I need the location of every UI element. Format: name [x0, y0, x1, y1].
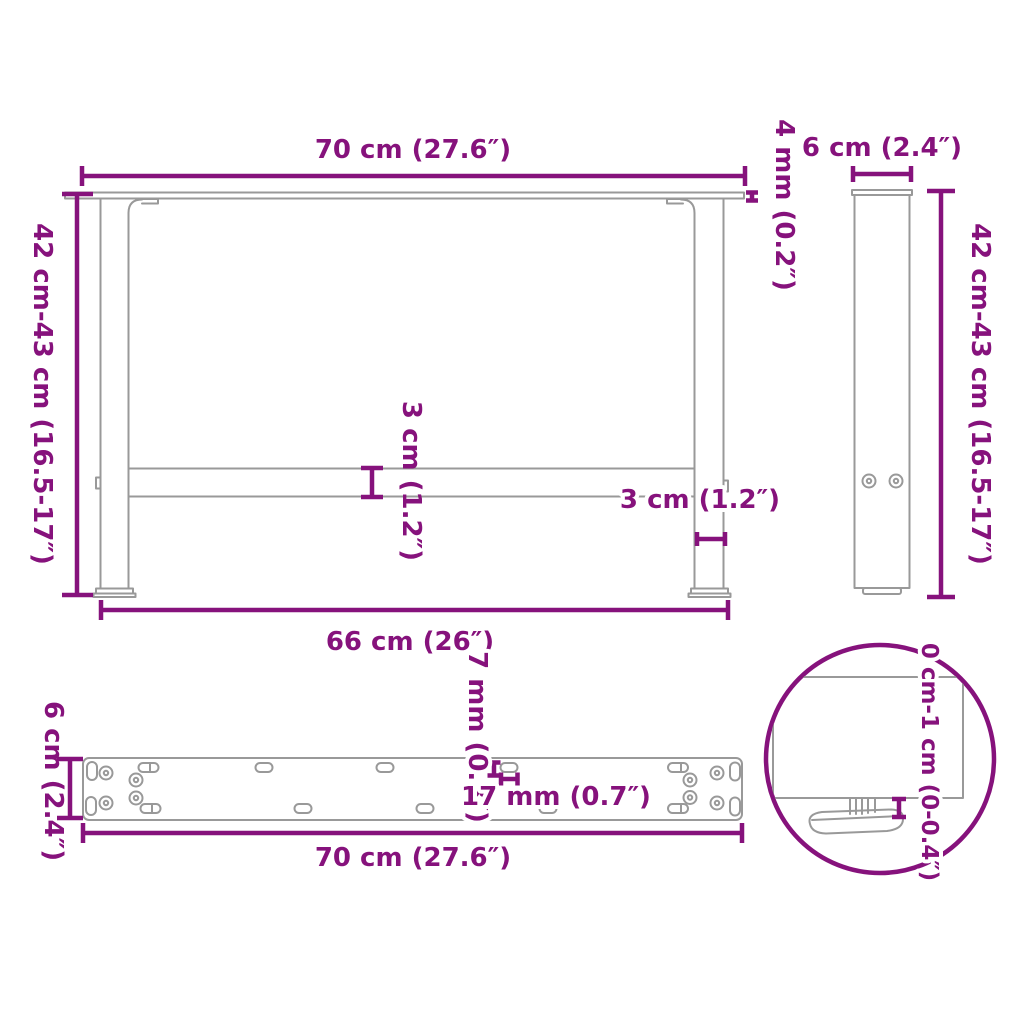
- dim-side-height: [927, 191, 955, 597]
- side-foot: [863, 588, 901, 594]
- label-plate-length: 70 cm (27.6″): [315, 843, 511, 873]
- detail-circle: [766, 645, 994, 873]
- dim-leg-width: [697, 532, 725, 546]
- side-screw-holes: [863, 475, 903, 488]
- front-right-leg: [681, 199, 724, 588]
- dim-plate-length: [83, 823, 742, 843]
- dim-crossbar-height: [361, 468, 383, 497]
- dim-side-depth: [853, 166, 911, 182]
- dim-front-top-width: [82, 166, 745, 186]
- label-front-top-width: 70 cm (27.6″): [315, 135, 511, 165]
- label-slot-length: 17 mm (0.7″): [461, 782, 651, 812]
- label-bar-thickness: 4 mm (0.2″): [769, 119, 799, 291]
- side-view-drawing: [852, 190, 912, 594]
- label-front-height: 42 cm-43 cm (16.5-17″): [27, 223, 57, 565]
- label-leg-width: 3 cm (1.2″): [620, 485, 780, 515]
- bar-tabs: [142, 199, 683, 204]
- label-side-height: 42 cm-43 cm (16.5-17″): [965, 223, 995, 565]
- label-foot-adjust: 0 cm-1 cm (0-0.4″): [916, 643, 942, 881]
- dim-feet-span: [101, 600, 728, 620]
- dimension-diagram: 70 cm (27.6″) 4 mm (0.2″) 6 cm (2.4″) 42…: [0, 0, 1024, 1024]
- dim-front-height: [62, 194, 93, 595]
- top-bar: [65, 193, 744, 199]
- label-crossbar-height: 3 cm (1.2″): [396, 401, 426, 561]
- front-left-leg: [101, 199, 143, 588]
- front-feet: [94, 589, 731, 598]
- dim-bar-thickness: [746, 193, 758, 201]
- side-leg-body: [855, 195, 910, 588]
- label-side-depth: 6 cm (2.4″): [802, 133, 962, 163]
- label-plate-depth: 6 cm (2.4″): [38, 701, 68, 861]
